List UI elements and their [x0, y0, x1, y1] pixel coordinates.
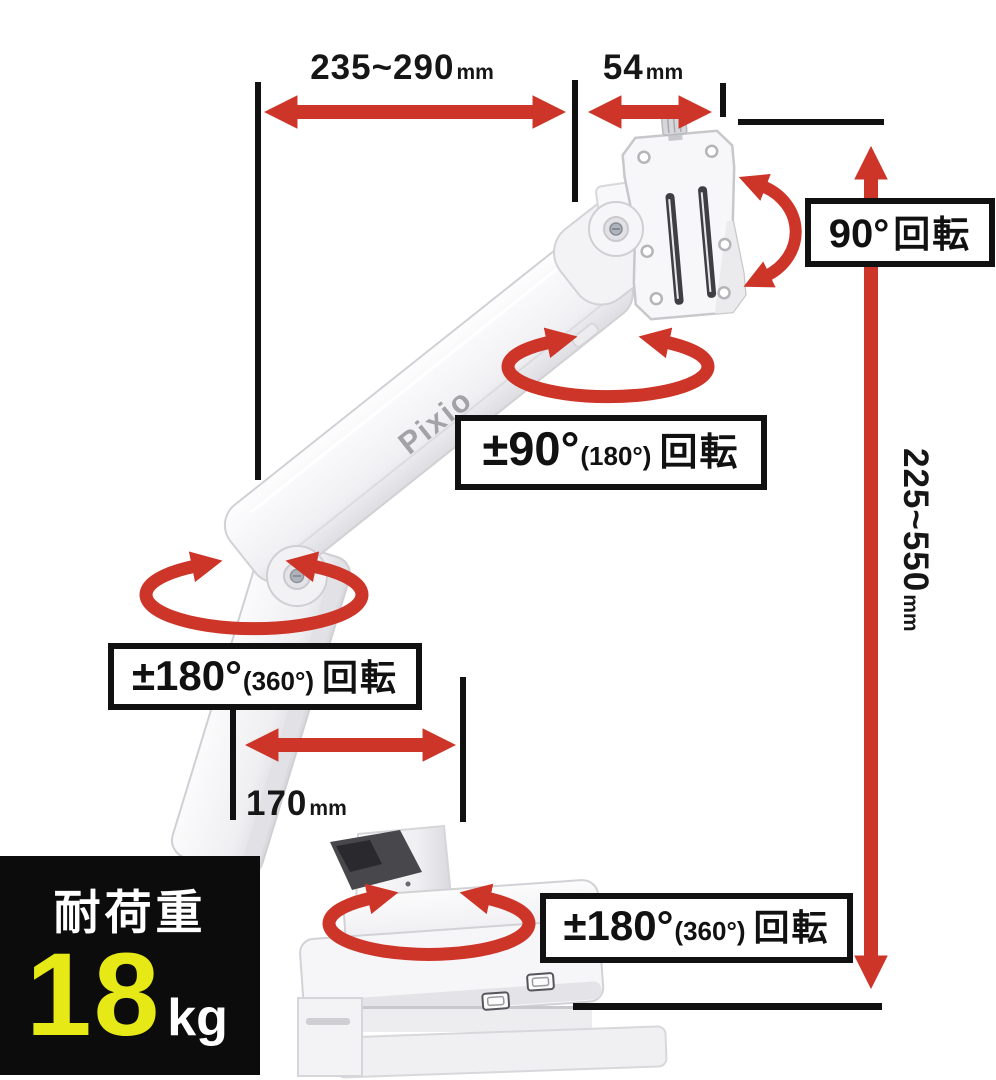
load-capacity-panel: 耐荷重 18 kg [0, 856, 260, 1075]
measurement-lower-arm-unit: mm [309, 797, 346, 821]
callout-elbow-joint-degrees: ±180° [132, 652, 242, 700]
callout-upper-joint-text: 回転 [659, 421, 739, 476]
rotation-arrow-vesa-tilt [762, 186, 796, 276]
tick-left [255, 82, 261, 480]
measurement-lower-arm-value: 170 [246, 784, 307, 824]
callout-upper-joint: ±90° (180°) 回転 [455, 415, 767, 490]
callout-vesa-rotation-text: 回転 [893, 204, 971, 258]
measurement-vesa-depth-value: 54 [603, 48, 644, 88]
tick-170-right [460, 677, 466, 822]
measurement-height-range-unit: mm [898, 594, 922, 631]
tick-right [720, 83, 726, 117]
callout-elbow-joint: ±180° (360°) 回転 [108, 643, 422, 710]
callout-vesa-rotation: 90° 回転 [805, 198, 995, 267]
product-diagram: Pixio [0, 0, 996, 1080]
measurement-lower-arm: 170 mm [246, 784, 426, 824]
callout-base-joint-text: 回転 [754, 899, 830, 951]
load-capacity-row: 18 kg [0, 931, 260, 1061]
tick-middle [572, 80, 578, 202]
callout-vesa-rotation-degrees: 90° [829, 212, 890, 257]
elbow-joint-cap [267, 546, 327, 606]
measurement-vesa-depth: 54 mm [578, 48, 708, 88]
load-capacity-unit: kg [167, 988, 228, 1048]
tick-170-left [230, 710, 236, 820]
measurement-arm-reach-value: 235~290 [310, 48, 454, 88]
callout-upper-joint-total: (180°) [580, 441, 651, 472]
load-capacity-value: 18 [26, 931, 161, 1061]
callout-upper-joint-degrees: ±90° [483, 421, 580, 476]
callout-elbow-joint-text: 回転 [322, 649, 398, 701]
measurement-vesa-depth-unit: mm [646, 61, 683, 85]
callout-elbow-joint-total: (360°) [243, 666, 314, 697]
measurement-arm-reach-unit: mm [456, 61, 493, 85]
measurement-height-range-value: 225~550 [895, 448, 935, 592]
measurement-arm-reach: 235~290 mm [252, 48, 552, 88]
measurement-height-range: 225~550 mm [895, 448, 935, 632]
callout-base-joint-degrees: ±180° [563, 902, 673, 950]
callout-base-joint-total: (360°) [674, 916, 745, 947]
callout-base-joint: ±180° (360°) 回転 [540, 893, 853, 963]
desk-line [573, 1003, 882, 1010]
top-reference-line [738, 119, 884, 125]
head-joint-cap [589, 202, 643, 256]
